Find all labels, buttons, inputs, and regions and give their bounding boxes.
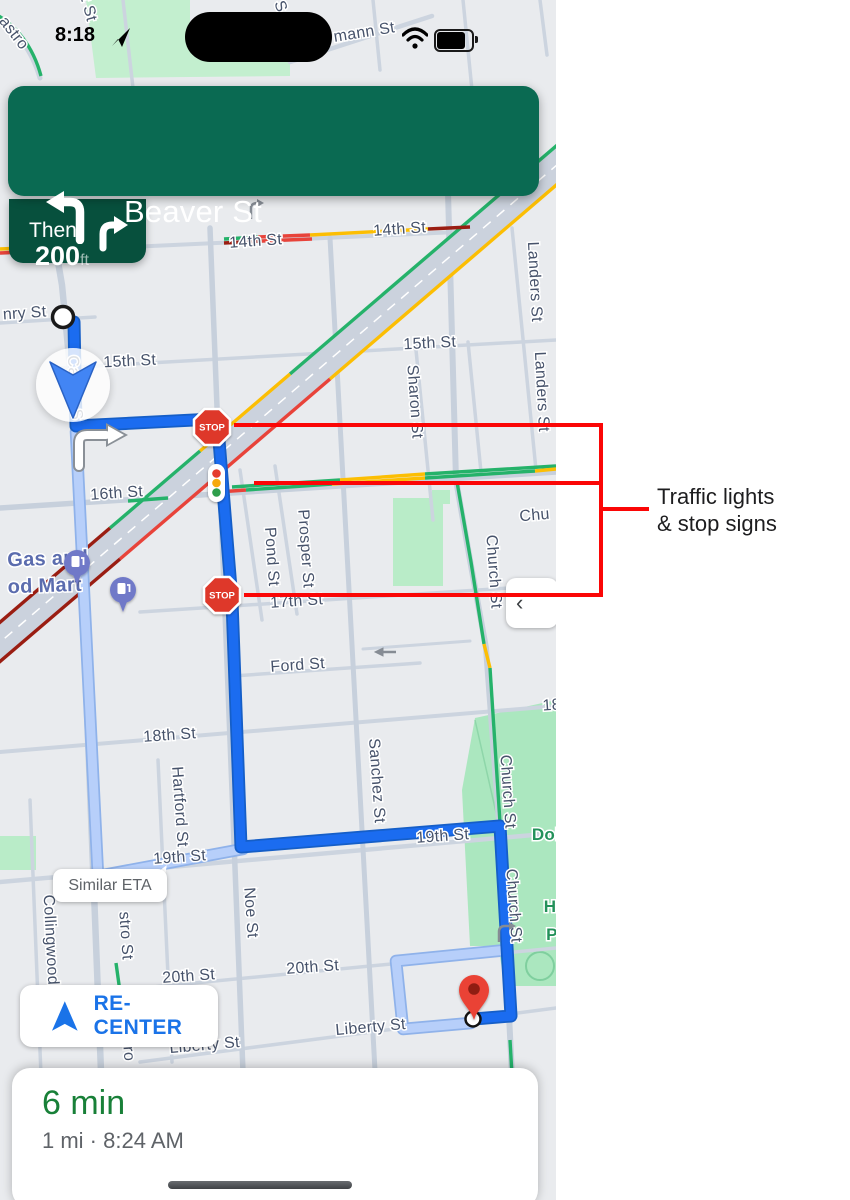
map-label: 15th St [103,352,157,372]
map-label: stro St [115,911,135,961]
screenshot-root: astrot StSmann Stnry StCastro S15th St15… [0,0,850,1200]
map-label: H [544,897,556,916]
navigation-banner[interactable]: Beaver St 200ft [8,86,539,196]
recenter-button[interactable]: RE-CENTER [20,985,218,1047]
map-label: Chu [519,506,551,526]
annotation-line1: Traffic lights [657,483,777,510]
navigation-arrow-icon [50,999,80,1033]
map-label: nry St [2,303,47,323]
banner-distance-unit: ft [80,252,89,269]
location-puck [36,348,110,422]
map-label: 18 [542,696,556,714]
turn-left-icon [42,182,94,244]
banner-distance: 200ft [35,241,89,272]
status-time: 8:18 [55,24,95,47]
trip-details: 1 mi · 8:24 AM [42,1128,184,1154]
trip-eta: 6 min [42,1084,125,1123]
stop-sign-icon: STOP [204,577,240,613]
similar-eta-label: Similar ETA [68,877,151,895]
stop-sign-icon: STOP [194,409,230,445]
annotation-line2: & stop signs [657,510,777,537]
map-label: 15th St [403,334,457,354]
status-bar: 8:18 [0,0,556,70]
annotation-line-trafficlight [254,481,599,485]
svg-text:STOP: STOP [209,591,235,602]
map-label: P [546,925,556,944]
map-label: od Mart [7,574,82,599]
bottom-sheet[interactable]: 6 min 1 mi · 8:24 AM [12,1068,538,1200]
similar-eta-bubble[interactable]: Similar ETA [53,869,167,902]
dynamic-island [185,12,332,62]
map-label: Noe St [240,887,261,939]
battery-icon [434,29,474,52]
wifi-icon [402,26,428,50]
annotation-label: Traffic lights & stop signs [657,483,777,537]
map-label: Dol [532,825,556,844]
banner-street-name: Beaver St [124,194,262,230]
home-indicator[interactable] [168,1181,352,1189]
phone-screen: astrot StSmann Stnry StCastro S15th St15… [0,0,556,1200]
annotation-connector [603,507,649,511]
location-arrow-icon [110,26,132,48]
annotation-line-stop2 [244,593,599,597]
recenter-label: RE-CENTER [94,992,218,1040]
svg-text:STOP: STOP [199,423,225,434]
map-label: ro [119,1046,137,1062]
side-panel-card[interactable]: ‹ [506,578,556,628]
waypoint-circle-icon [53,307,74,328]
traffic-light-icon [208,464,225,502]
annotation-line-stop1 [234,423,599,427]
